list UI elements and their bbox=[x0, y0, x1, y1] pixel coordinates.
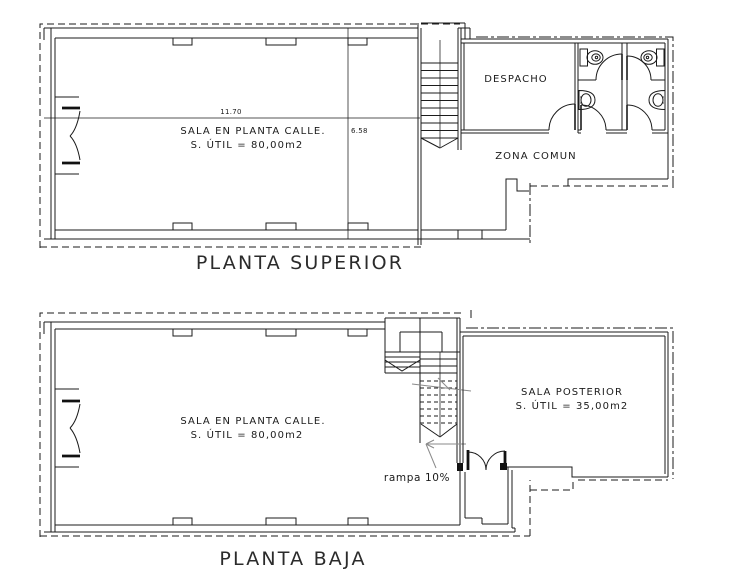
superior-entrance-double-door bbox=[55, 97, 80, 174]
planta-baja-plan: rampa 10% SALA POSTERIOR S. ÚTIL = 35,00… bbox=[40, 310, 673, 570]
dim-height-label: 6.58 bbox=[351, 127, 368, 135]
planta-superior-title: PLANTA SUPERIOR bbox=[196, 252, 404, 274]
sala-posterior-area: S. ÚTIL = 35,00m2 bbox=[516, 399, 629, 412]
baja-entrance-double-door bbox=[55, 389, 80, 467]
bathrooms bbox=[578, 39, 668, 179]
baja-dashed-boundary bbox=[40, 310, 673, 537]
dim-width-label: 11.70 bbox=[220, 108, 242, 116]
floor-plan-sheet: 11.70 6.58 DESPACHO bbox=[0, 0, 749, 579]
sink-icon bbox=[649, 91, 665, 110]
planta-baja-title: PLANTA BAJA bbox=[219, 548, 366, 570]
baja-staircase bbox=[385, 318, 471, 468]
wc-door-right bbox=[627, 56, 651, 80]
baja-sala-calle-name: SALA EN PLANTA CALLE. bbox=[180, 416, 325, 427]
despacho-door bbox=[549, 104, 575, 130]
despacho-label: DESPACHO bbox=[484, 74, 548, 85]
zona-comun-label: ZONA COMUN bbox=[495, 151, 577, 162]
ramp-label: rampa 10% bbox=[384, 472, 450, 484]
sala-posterior-double-door bbox=[468, 450, 505, 470]
toilet-icon bbox=[580, 49, 603, 66]
baja-sala-calle-area: S. ÚTIL = 80,00m2 bbox=[191, 428, 304, 441]
superior-staircase bbox=[418, 23, 470, 245]
baja-main-hall-walls bbox=[44, 322, 515, 532]
planta-superior-plan: 11.70 6.58 DESPACHO bbox=[40, 23, 673, 274]
sala-calle-area: S. ÚTIL = 80,00m2 bbox=[191, 138, 304, 151]
despacho-room bbox=[461, 39, 668, 133]
floor-plan-drawing: 11.70 6.58 DESPACHO bbox=[0, 0, 749, 579]
toilet-icon bbox=[641, 49, 664, 66]
vestibule bbox=[460, 463, 515, 532]
sala-calle-name: SALA EN PLANTA CALLE. bbox=[180, 126, 325, 137]
zona-comun-boundary bbox=[506, 179, 668, 245]
section-break-line bbox=[412, 378, 471, 391]
sala-posterior-name: SALA POSTERIOR bbox=[521, 387, 623, 398]
bathroom-door-right bbox=[627, 105, 652, 130]
